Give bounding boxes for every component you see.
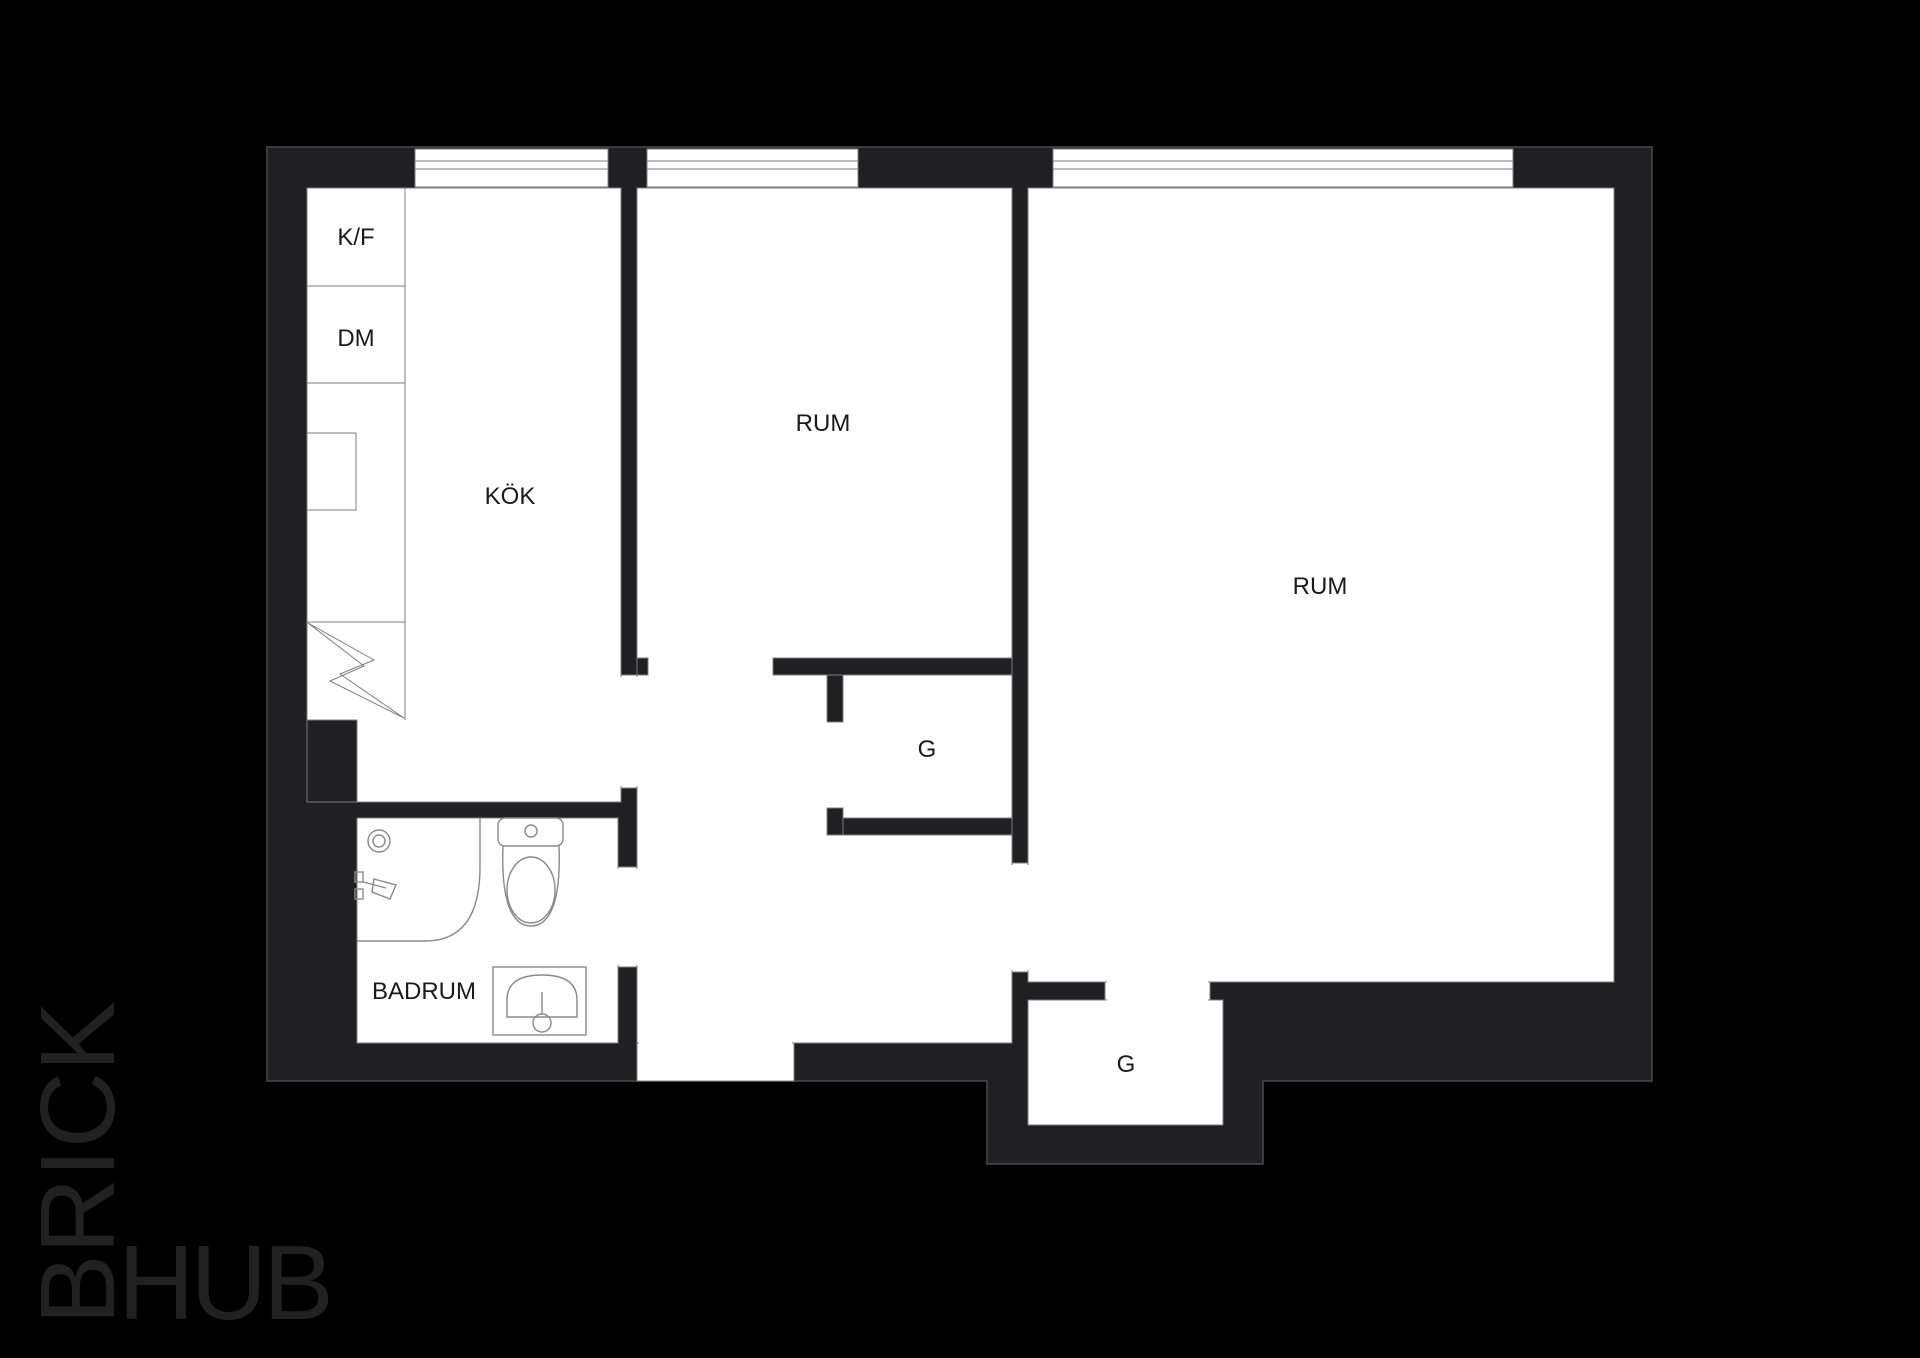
label-bathroom: BADRUM (372, 978, 476, 1005)
wall-closet-stub (827, 675, 843, 722)
label-dishwasher: DM (337, 325, 374, 352)
wall-closet-top (773, 658, 1012, 675)
floor-plan-page: K/F DM KÖK RUM RUM G G BADRUM BRICK HUB (0, 0, 1920, 1358)
room-kitchen (307, 188, 621, 802)
label-kitchen: KÖK (485, 483, 536, 510)
label-room-large: RUM (1293, 573, 1348, 600)
wall-kitchen-stub (637, 658, 648, 675)
opening-entrance (637, 1043, 794, 1081)
window-icon (1053, 149, 1513, 187)
floor-plan: K/F DM KÖK RUM RUM G G BADRUM (0, 0, 1920, 1358)
wall-closet-bottom (843, 818, 1012, 835)
label-room-middle: RUM (796, 410, 851, 437)
wall-closet-jamb (827, 808, 843, 835)
window-icon (415, 149, 608, 187)
opening-hall-large-room (1012, 863, 1028, 972)
wall-under-cabinets (307, 720, 357, 802)
opening-closet-bottom (1105, 982, 1210, 1000)
window-icon (647, 149, 858, 187)
brickhub-logo-hub: HUB (118, 1243, 330, 1323)
label-fridge-freezer: K/F (337, 224, 374, 251)
label-closet-middle: G (918, 736, 937, 763)
room-middle-and-hall (637, 188, 1012, 1043)
room-bathroom (357, 818, 618, 1043)
label-closet-bottom: G (1117, 1051, 1136, 1078)
brickhub-logo-brick: BRICK (38, 1001, 118, 1325)
